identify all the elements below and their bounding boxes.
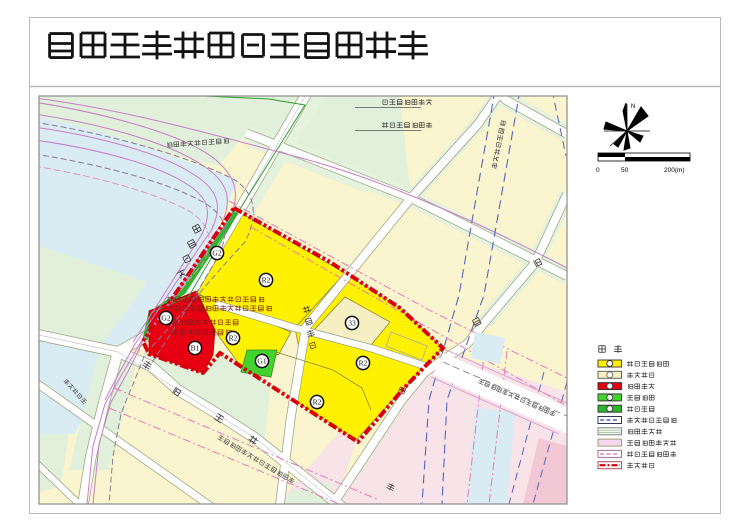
svg-text:R2: R2 — [359, 359, 368, 368]
svg-text:200(m): 200(m) — [664, 167, 685, 174]
svg-text:G1: G1 — [257, 357, 266, 366]
svg-text:G2: G2 — [212, 249, 221, 258]
svg-text:N: N — [631, 104, 635, 110]
svg-text:50: 50 — [621, 167, 629, 174]
svg-text:R2: R2 — [313, 398, 322, 407]
svg-text:0: 0 — [596, 167, 600, 174]
svg-text:G2: G2 — [161, 314, 170, 323]
svg-text:33: 33 — [348, 319, 356, 328]
svg-text:R2: R2 — [262, 276, 271, 285]
svg-text:B1: B1 — [191, 344, 200, 353]
svg-text:R2: R2 — [229, 334, 238, 343]
